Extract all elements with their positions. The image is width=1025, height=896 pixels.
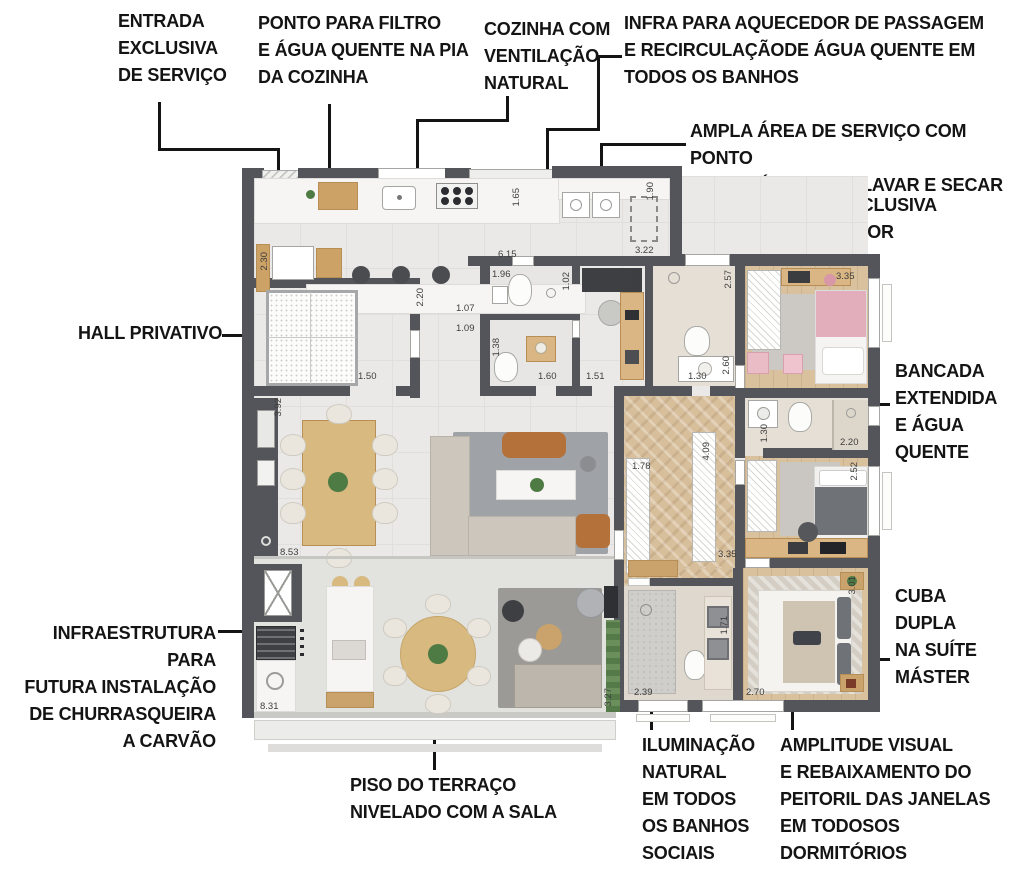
office-desk [620, 292, 644, 380]
wall [868, 426, 880, 466]
dining-chair [372, 434, 398, 456]
dim-label: 1.71 [720, 616, 730, 635]
burner [453, 187, 461, 195]
desk-chair [798, 522, 818, 542]
shaft-x-box [264, 570, 292, 616]
dining-chair [280, 502, 306, 524]
terrace-chair [425, 594, 451, 614]
wall [730, 254, 880, 266]
wall [735, 388, 880, 398]
annotation-churrasqueira: INFRAESTRUTURA PARA FUTURA INSTALAÇÃO DE… [10, 620, 216, 755]
condenser-area-dashed [630, 196, 658, 242]
desk-laptop [788, 271, 810, 283]
leader-entrada [158, 148, 280, 151]
white-pouf [518, 638, 542, 662]
corridor-closet [626, 458, 650, 574]
dim-label: 2.30 [260, 252, 270, 271]
toilet [788, 402, 812, 432]
dim-label: 2.70 [746, 688, 765, 698]
dim-label: 1.30 [688, 372, 707, 382]
wall [733, 568, 743, 700]
annotation-entrada-servico: ENTRADA EXCLUSIVA DE SERVIÇO [118, 8, 227, 89]
dim-label: 3.01 [848, 576, 858, 595]
desk-stool [824, 274, 836, 286]
coffee-table-plant [530, 478, 544, 492]
bed-pillow [822, 347, 864, 375]
terrace-corridor-door [614, 530, 624, 560]
dim-label: 1.96 [492, 270, 511, 280]
dim-label: 2.57 [724, 270, 734, 289]
decor-bowl [261, 536, 271, 546]
annotation-piso-terraco: PISO DO TERRAÇO NIVELADO COM A SALA [350, 772, 557, 826]
dining-chair [280, 468, 306, 490]
dining-chair [372, 502, 398, 524]
wall [784, 700, 880, 712]
desk-printer [625, 350, 639, 364]
nightstand-decor [846, 679, 856, 688]
dim-label: 2.20 [840, 438, 859, 448]
dim-label: 3.27 [604, 688, 614, 707]
wall [614, 386, 692, 396]
bed-blanket-pink [816, 291, 866, 337]
plant-decor [306, 190, 315, 199]
bath-window [685, 254, 730, 266]
leather-ottoman [502, 432, 566, 458]
cuba-sink-2 [707, 638, 729, 660]
terrace-tv [604, 586, 618, 618]
nook-chair [316, 248, 342, 278]
terrace-chair [467, 666, 491, 686]
annotation-cuba-dupla: CUBA DUPLA NA SUÍTE MÁSTER [895, 583, 977, 691]
leather-pouf [576, 514, 610, 548]
grill-knobs [300, 628, 304, 656]
bedroom1-door [735, 365, 745, 390]
elevator-line [310, 292, 311, 384]
dim-label: 2.60 [632, 270, 642, 289]
dim-label: 8.53 [280, 548, 299, 558]
dim-label: 3.22 [635, 246, 654, 256]
dim-label: 2.60 [722, 356, 732, 375]
wall [868, 254, 880, 278]
dim-label: 2.39 [634, 688, 653, 698]
dark-side-table [502, 600, 524, 622]
dim-label: 4.09 [702, 442, 712, 461]
basin [757, 407, 770, 420]
leader-cozinha [416, 119, 509, 122]
dim-label: 3.92 [274, 398, 284, 417]
annotation-ponto-filtro: PONTO PARA FILTRO E ÁGUA QUENTE NA PIA D… [258, 10, 469, 91]
window-sill [882, 284, 892, 342]
dim-label: 1.51 [586, 372, 605, 382]
shower-head [668, 272, 680, 284]
dim-label: 1.09 [456, 324, 475, 334]
dim-label: 2.52 [850, 462, 860, 481]
wall [242, 168, 254, 718]
master-wardrobe [628, 560, 678, 577]
sofa [430, 436, 470, 556]
terrace-sofa [514, 664, 602, 708]
wall [645, 266, 653, 390]
window-sill [636, 714, 690, 722]
bedroom2-wardrobe [747, 460, 777, 532]
wall-hall [254, 386, 350, 396]
bedroom2-door [735, 460, 745, 485]
terrace-outer-step [268, 744, 602, 752]
annotation-cozinha-ventilacao: COZINHA COM VENTILAÇÃO NATURAL [484, 16, 610, 97]
burner [453, 197, 461, 205]
lounge-armchair [576, 588, 606, 618]
bedroom1-window [868, 278, 880, 348]
floor-plan: 1.90 3.22 1.65 2.30 2.20 6.15 1.96 1.02 … [240, 160, 900, 760]
window-sill [710, 714, 776, 722]
table-plant [328, 472, 348, 492]
bath-door [572, 320, 580, 338]
master-bedroom-window [702, 700, 784, 712]
sliding-door-track [254, 556, 614, 559]
bedroom1-wardrobe [747, 270, 781, 350]
dim-label: 3.35 [836, 272, 855, 282]
wall [480, 386, 536, 396]
side-table [580, 456, 596, 472]
dining-chair [372, 468, 398, 490]
island-stool [352, 266, 370, 284]
main-entry-door [410, 330, 420, 358]
terrace-chair [467, 618, 491, 638]
dim-label: 1.38 [492, 338, 502, 357]
wall [650, 578, 734, 586]
faucet [397, 195, 402, 200]
burner [441, 197, 449, 205]
dim-label: 1.50 [358, 372, 377, 382]
terrace-island-base [326, 692, 374, 708]
dim-label: 1.30 [760, 424, 770, 443]
cutting-board [318, 182, 358, 210]
stove [436, 183, 478, 209]
toy-box [783, 354, 803, 374]
table-plant [428, 644, 448, 664]
annotation-hall-privativo: HALL PRIVATIVO [78, 320, 222, 347]
elevator-line [268, 337, 356, 338]
terrace-glass-band [254, 720, 616, 740]
toilet [508, 274, 532, 306]
master-bath-door [628, 578, 650, 586]
laptop [625, 310, 639, 320]
terrace-chair [383, 618, 407, 638]
dim-label: 6.15 [498, 250, 517, 260]
wall [670, 254, 685, 266]
wall [534, 256, 672, 266]
media-cabinet [257, 460, 275, 486]
bed-pillow-gray [837, 597, 851, 639]
lavabo-sink [492, 286, 508, 304]
wall [735, 448, 745, 458]
toilet [684, 326, 710, 356]
wall [556, 386, 592, 396]
shower-head [546, 288, 556, 298]
master-bed [758, 590, 852, 692]
leader-ampla-area [600, 143, 686, 146]
desk-monitor [820, 542, 846, 554]
leader-infra [597, 55, 600, 131]
barbecue-grill [256, 626, 296, 660]
annotation-infra-aquecedor: INFRA PARA AQUECEDOR DE PASSAGEM E RECIR… [624, 10, 984, 91]
island-stool [432, 266, 450, 284]
nook-table [272, 246, 314, 280]
burner [465, 187, 473, 195]
annotation-bancada-extendida: BANCADA EXTENDIDA E ÁGUA QUENTE [895, 358, 997, 466]
island-stool [354, 576, 370, 586]
wall-hall [396, 386, 420, 396]
wall [770, 558, 880, 568]
washer-door [570, 199, 582, 211]
dim-label: 1.78 [632, 462, 651, 472]
leader-infra [546, 128, 600, 131]
dim-label: 2.20 [416, 288, 426, 307]
dining-chair [326, 404, 352, 424]
island-stool [392, 266, 410, 284]
terrace-island [326, 586, 374, 692]
island-stool [332, 576, 348, 586]
sofa-chaise [468, 516, 576, 556]
terrace-chair [425, 694, 451, 714]
window-sill [882, 472, 892, 530]
shower-head [640, 604, 652, 616]
dim-label: 1.90 [646, 182, 656, 201]
bedroom1-dresser [747, 352, 769, 374]
toilet [494, 352, 518, 382]
master-shower [628, 590, 676, 694]
leader-entrada [158, 102, 161, 150]
dining-chair [280, 434, 306, 456]
elevator [266, 290, 358, 386]
wall [572, 338, 580, 390]
wall [735, 266, 745, 365]
bed-blanket-gray [815, 487, 867, 535]
wall [688, 700, 702, 712]
wall [670, 166, 682, 266]
desk-laptop [788, 542, 808, 554]
shower-head [846, 408, 856, 418]
wall [614, 396, 624, 530]
wall [735, 485, 745, 558]
toilet [684, 650, 706, 680]
burner [465, 197, 473, 205]
dim-label: 1.07 [456, 304, 475, 314]
master-door [745, 558, 770, 568]
bath2-window [868, 406, 880, 426]
counter-sink [266, 672, 284, 690]
floorplan-page: { "annotations": { "entrada": "ENTRADA\n… [0, 0, 1025, 896]
bed-throw [793, 631, 821, 645]
dim-label: 1.02 [562, 272, 572, 291]
bedroom1-bed [815, 290, 867, 384]
vanity-basin [535, 342, 547, 354]
terrace-chair [383, 666, 407, 686]
dim-label: 1.65 [512, 188, 522, 207]
bedroom2-window [868, 466, 880, 536]
burner [441, 187, 449, 195]
dim-label: 1.60 [538, 372, 557, 382]
dim-label: 8.31 [260, 702, 279, 712]
dim-label: 3.35 [718, 550, 737, 560]
wall [735, 558, 745, 568]
master-bath-window [638, 700, 688, 712]
leader-infra [597, 55, 622, 58]
dryer-door [600, 199, 612, 211]
serving-tray [332, 640, 366, 660]
